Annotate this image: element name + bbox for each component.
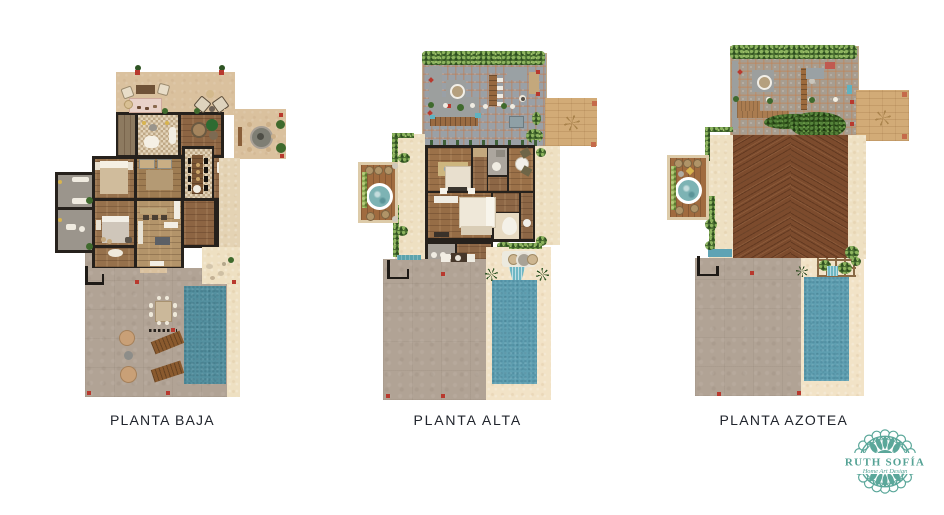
svg-text:RUTH SOFÍA: RUTH SOFÍA xyxy=(845,457,925,469)
svg-text:Home Art Design: Home Art Design xyxy=(862,468,908,475)
